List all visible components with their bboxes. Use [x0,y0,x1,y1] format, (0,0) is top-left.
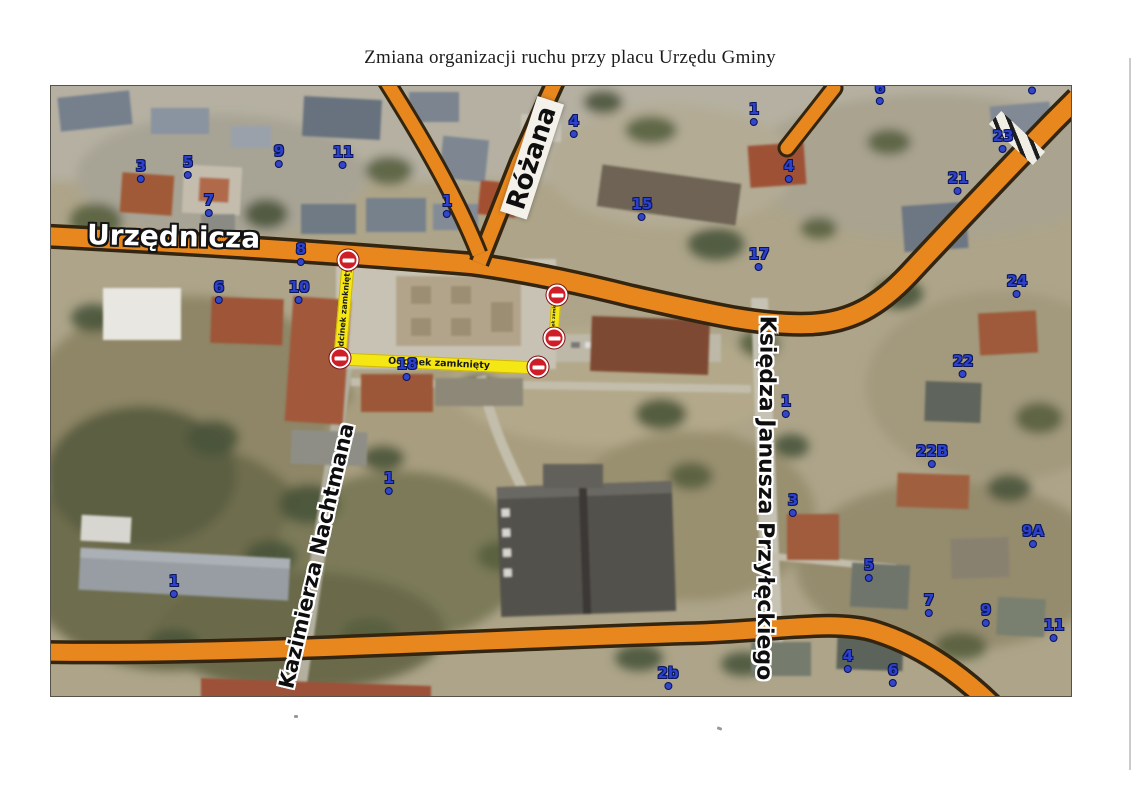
house-number-marker: 24 [1007,274,1028,298]
house-number-marker: 3 [136,159,146,183]
house-number-dot [925,609,933,617]
house-number-dot [889,679,897,687]
house-number-dot [999,145,1007,153]
no-entry-sign-bar [532,365,544,369]
house-number-dot [876,97,884,105]
house-number-label: 21 [948,171,969,186]
scan-artifact-speck [717,726,723,731]
house-number-marker: 9A [1022,524,1044,548]
no-entry-sign [338,250,359,271]
house-number-dot [865,574,873,582]
house-number-dot [275,160,283,168]
house-number-dot [570,130,578,138]
house-number-marker: 23 [993,129,1014,153]
no-entry-sign-bar [342,258,354,262]
house-number-label: 11 [1044,618,1065,633]
house-number-marker: 5 [183,155,193,179]
house-number-label: 3 [788,493,798,508]
no-entry-sign [330,348,351,369]
house-number-marker: 9 [981,603,991,627]
no-entry-sign-bar [334,356,346,360]
house-number-label: 6 [888,663,898,678]
house-number-label: 8 [296,242,306,257]
house-number-marker: 22B [916,444,948,468]
no-entry-sign [544,328,565,349]
house-number-marker: 5 [864,558,874,582]
house-number-label: 7 [924,593,934,608]
house-number-label: 22 [953,354,974,369]
house-number-marker: 6 [888,663,898,687]
house-number-dot [928,460,936,468]
house-number-marker: 9 [274,144,284,168]
house-number-marker: 7 [204,193,214,217]
house-number-marker: 3 [788,493,798,517]
house-number-marker: 4 [784,159,794,183]
house-number-marker: 7 [924,593,934,617]
house-number-label: 1 [442,194,452,209]
house-number-label: 1 [749,102,759,117]
house-number-marker: 11 [1044,618,1065,642]
street-label-urzednicza: Urzędnicza [87,221,261,253]
house-number-dot [982,619,990,627]
house-number-label: 17 [749,247,770,262]
house-number-dot [954,187,962,195]
house-number-label: 7 [204,193,214,208]
house-number-dot [785,175,793,183]
house-number-label: 2b [657,666,678,681]
house-number-dot [755,263,763,271]
scanned-document-page: Zmiana organizacji ruchu przy placu Urzę… [0,0,1140,806]
house-number-dot [782,410,790,418]
house-number-marker: 4 [569,114,579,138]
house-number-marker: 1 [169,574,179,598]
house-number-label: 10 [289,280,310,295]
house-number-dot [137,175,145,183]
house-number-dot [750,118,758,126]
house-number-dot [1013,290,1021,298]
house-number-marker: 10 [289,280,310,304]
house-number-marker: 1 [781,394,791,418]
house-number-dot [1028,87,1036,95]
house-number-label: 4 [784,159,794,174]
house-number-label: 3 [136,159,146,174]
house-number-dot [184,171,192,179]
house-number-label: 9 [981,603,991,618]
house-number-dot [638,213,646,221]
house-number-label: 1 [781,394,791,409]
house-number-label: 1 [384,471,394,486]
house-number-marker: 1 [442,194,452,218]
house-number-dot [170,590,178,598]
house-number-label: 5 [864,558,874,573]
house-number-marker: 2b [657,666,678,690]
house-number-label: 4 [843,649,853,664]
house-number-label: 1 [169,574,179,589]
house-number-dot [844,665,852,673]
no-entry-sign-bar [551,293,563,297]
house-number-marker: 15 [632,197,653,221]
house-number-marker: 18 [397,357,418,381]
house-number-marker: 1 [749,102,759,126]
house-number-dot [403,373,411,381]
house-number-label: 9 [274,144,284,159]
house-number-dot [295,296,303,304]
house-number-dot [959,370,967,378]
house-number-label: 5 [183,155,193,170]
aerial-map: Odcinek zamkniętyOdcinek zamkniętyOdcine… [50,85,1072,697]
page-title: Zmiana organizacji ruchu przy placu Urzę… [0,47,1140,69]
house-number-dot [215,296,223,304]
house-number-dot [789,509,797,517]
no-entry-sign [528,357,549,378]
house-number-dot [664,682,672,690]
scan-artifact-speck [294,715,298,718]
house-number-label: 22B [916,444,948,459]
house-number-marker: 6 [214,280,224,304]
scan-artifact-line [1129,58,1131,770]
house-number-marker: 22 [953,354,974,378]
house-number-dot [385,487,393,495]
house-number-marker: 11 [333,145,354,169]
no-entry-sign-bar [548,336,560,340]
house-number-marker: 1 [384,471,394,495]
house-number-label: 9A [1022,524,1044,539]
house-number-label: 11 [333,145,354,160]
house-number-dot [205,209,213,217]
house-number-dot [1029,540,1037,548]
house-number-dot [339,161,347,169]
house-number-marker: 8 [296,242,306,266]
house-number-marker: 6 [875,85,885,105]
house-number-label: 4 [569,114,579,129]
house-number-label: 15 [632,197,653,212]
house-number-dot [1050,634,1058,642]
house-number-label: 6 [214,280,224,295]
house-number-dot [297,258,305,266]
aerial-photo-background [51,86,1072,697]
house-number-label: 23 [993,129,1014,144]
street-label-ksiedza-janusza-przyleckiego: Księdza Janusza Przyłęckiego [752,316,777,681]
house-number-marker: 17 [749,247,770,271]
house-number-marker: 4 [843,649,853,673]
house-number-label: 18 [397,357,418,372]
house-number-marker: 21 [948,171,969,195]
house-number-marker [1028,86,1036,95]
house-number-label: 24 [1007,274,1028,289]
no-entry-sign [547,285,568,306]
house-number-label: 6 [875,85,885,96]
house-number-dot [443,210,451,218]
